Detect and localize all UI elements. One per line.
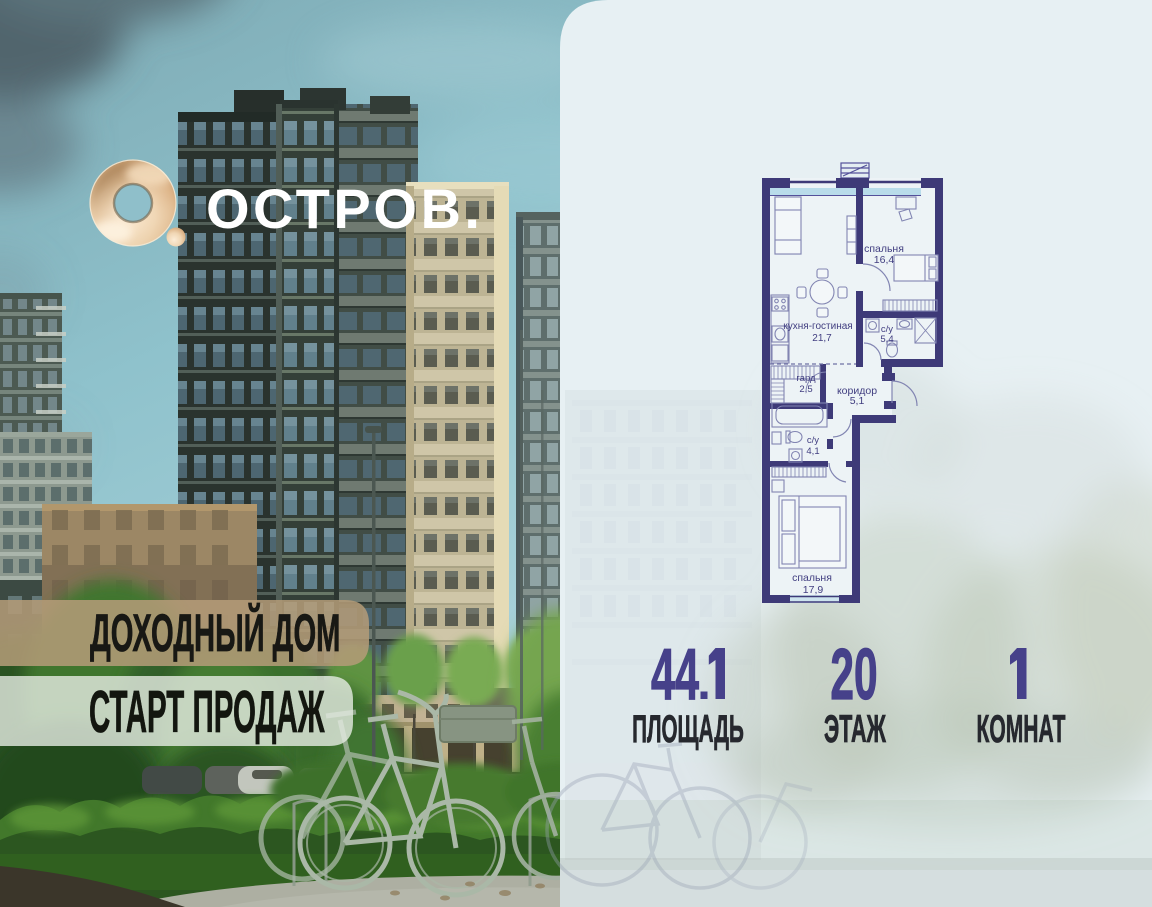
svg-text:5,4: 5,4 [880, 334, 893, 345]
svg-text:17,9: 17,9 [803, 584, 824, 596]
svg-text:ЭТАЖ: ЭТАЖ [824, 707, 886, 750]
svg-text:КОМНАТ: КОМНАТ [977, 707, 1066, 751]
svg-text:ДОХОДНЫЙ ДОМ: ДОХОДНЫЙ ДОМ [90, 603, 340, 664]
svg-text:ПЛОЩАДЬ: ПЛОЩАДЬ [632, 707, 744, 751]
svg-text:5,1: 5,1 [850, 395, 865, 407]
svg-text:СТАРТ ПРОДАЖ: СТАРТ ПРОДАЖ [89, 679, 325, 745]
svg-text:21,7: 21,7 [812, 333, 832, 344]
svg-text:20: 20 [830, 633, 877, 715]
svg-text:спальня: спальня [792, 572, 832, 584]
svg-text:2,5: 2,5 [799, 384, 812, 395]
svg-text:с/у: с/у [807, 435, 819, 446]
svg-text:44: 44 [651, 634, 699, 715]
svg-text:гард: гард [796, 373, 816, 384]
svg-text:4,1: 4,1 [806, 446, 819, 457]
svg-text:кухня-гостиная: кухня-гостиная [783, 321, 852, 332]
svg-text:ОСТРОВ.: ОСТРОВ. [206, 177, 483, 240]
svg-text:16,4: 16,4 [874, 254, 895, 266]
